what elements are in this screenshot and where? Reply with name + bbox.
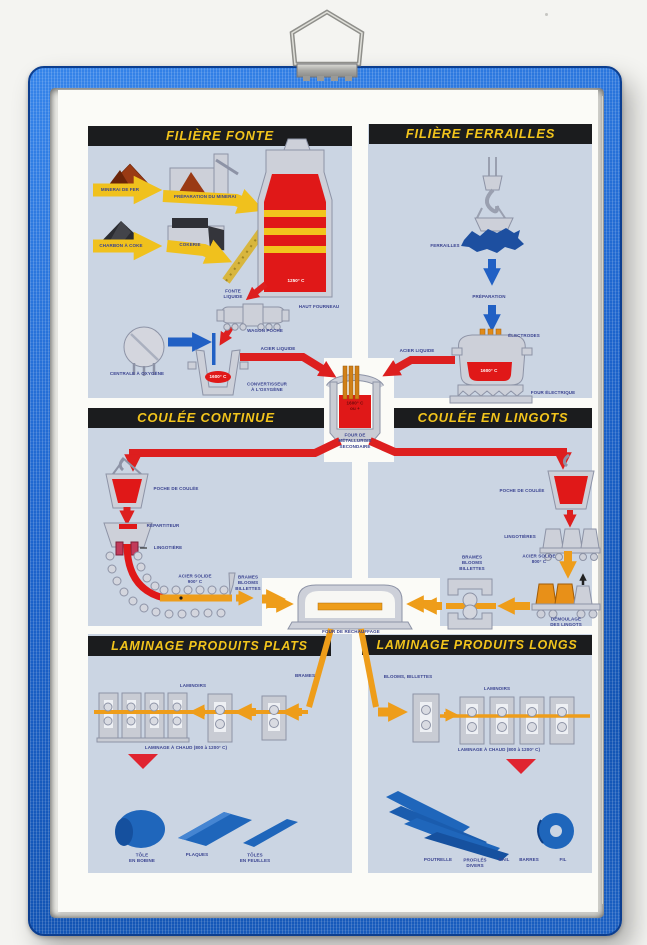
label-laminoirs-left: LAMINOIRS — [180, 683, 206, 689]
label-convertisseur: CONVERTISSEUR À L'OXYGÈNE — [247, 381, 287, 392]
label-brames-blooms-right: BRAMES BLOOMS BILLETTES — [459, 555, 484, 572]
label-lingotieres: LINGOTIÈRES — [504, 534, 536, 540]
label-acier-solide-800: ACIER SOLIDE 800° C — [522, 553, 555, 564]
slabbing-mill-icon — [446, 579, 496, 629]
label-laminage-chaud-left: LAMINAGE À CHAUD (800 à 1200° C) — [145, 745, 227, 751]
label-repartiteur: RÉPARTITEUR — [147, 523, 180, 529]
label-temp-metallurgie: 1600° C ou + — [346, 400, 363, 411]
label-poutrelle: POUTRELLE — [424, 857, 452, 863]
metal-hanger — [267, 8, 387, 93]
label-brames-plats: BRAMES — [295, 673, 315, 679]
long-rolling-mill-icons — [378, 694, 590, 774]
hanger-clamp-icon — [297, 64, 357, 77]
label-four-electrique: FOUR ÉLECTRIQUE — [531, 390, 576, 396]
label-brames-blooms-left: BRAMES BLOOMS BILLETTES — [235, 575, 260, 592]
label-temp-four-electrique: 1600° C — [480, 368, 497, 374]
demoulded-ingots-icon — [532, 577, 600, 618]
down-triangle-icon — [506, 759, 536, 774]
label-acier-liquide-right: ACIER LIQUIDE — [400, 348, 435, 354]
label-lingotiere: LINGOTIÈRE — [154, 545, 183, 551]
poster-artwork — [0, 0, 647, 945]
label-centrale-oxygene: CENTRALE À OXYGÈNE — [110, 371, 164, 377]
label-acier-solide-900: ACIER SOLIDE 900° C — [178, 573, 211, 584]
label-tole-en-bobine: TÔLE EN BOBINE — [129, 852, 155, 863]
transfer-diagonals — [309, 629, 376, 707]
acier-liquide-left-arrow — [240, 357, 329, 373]
strand-rollers-icon — [106, 552, 228, 618]
label-rail: RAIL — [499, 857, 510, 863]
scrap-crane-icon — [461, 157, 524, 253]
continuous-casting-icons — [104, 458, 276, 618]
hanger-wire-icon — [292, 12, 362, 64]
label-minerai-de-fer: MINERAI DE FER — [101, 187, 139, 193]
label-temp-convertisseur: 1600° C — [209, 374, 226, 380]
photo-scene: FILIÈRE FONTE FILIÈRE FERRAILLES COULÉE … — [0, 0, 647, 945]
label-profiles-divers: PROFILÉS DIVERS — [463, 857, 486, 868]
down-triangle-icon — [128, 754, 158, 769]
oxygen-lance-icon — [212, 333, 216, 365]
label-temp-1250: 1250° C — [287, 278, 304, 284]
flat-products-icon — [115, 810, 298, 848]
label-electrodes: ÉLECTRODES — [508, 333, 540, 339]
label-cokerie: COKERIE — [179, 242, 200, 248]
label-ferrailles: FERRAILLES — [430, 243, 459, 249]
label-fonte-liquide: FONTE LIQUIDE — [224, 288, 243, 299]
label-poche-coulee-left: POCHE DE COULÉE — [153, 486, 198, 492]
label-plaques: PLAQUES — [186, 852, 208, 858]
ore-coal-piles-icon — [95, 164, 154, 248]
label-preparation: PRÉPARATION — [472, 294, 505, 300]
long-products-icon — [386, 791, 574, 861]
acier-liquide-right-arrow — [390, 360, 455, 372]
label-preparation-minerai: PRÉPARATION DU MINERAI — [174, 194, 236, 200]
label-haut-fourneau: HAUT FOURNEAU — [299, 304, 340, 310]
flat-rolling-mill-icons — [94, 693, 308, 769]
blast-furnace-icon — [258, 139, 332, 297]
label-laminoirs-right: LAMINOIRS — [484, 686, 510, 692]
label-four-rechauffage: FOUR DE RÉCHAUFFAGE — [322, 629, 380, 635]
label-demoulage: DÉMOULAGE DES LINGOTS — [550, 616, 582, 627]
converter-icon — [188, 350, 248, 395]
label-wagon-poche: WAGON POCHE — [247, 328, 283, 334]
label-toles-en-feuilles: TÔLES EN FEUILLES — [240, 852, 270, 863]
mold-icon — [116, 542, 123, 555]
label-four-metallurgie: FOUR DE MÉTALLURGIE SECONDAIRE — [338, 433, 371, 450]
cutting-torch-icon — [229, 573, 235, 595]
wagon-poche-icon — [217, 304, 289, 330]
electric-furnace-icon — [450, 329, 532, 403]
label-barres: BARRES — [519, 857, 539, 863]
label-laminage-chaud-right: LAMINAGE À CHAUD (800 à 1200° C) — [458, 747, 540, 753]
label-fil: FIL — [559, 857, 566, 863]
label-poche-coulee-right: POCHE DE COULÉE — [499, 488, 544, 494]
label-acier-liquide-left: ACIER LIQUIDE — [261, 346, 296, 352]
reheating-furnace-icon — [268, 585, 432, 629]
label-blooms-billettes: BLOOMS, BILLETTES — [384, 674, 432, 680]
ingot-casting-icons — [428, 455, 600, 629]
scrap-pile-icon — [461, 228, 524, 253]
label-charbon-a-coke: CHARBON À COKE — [99, 243, 142, 249]
